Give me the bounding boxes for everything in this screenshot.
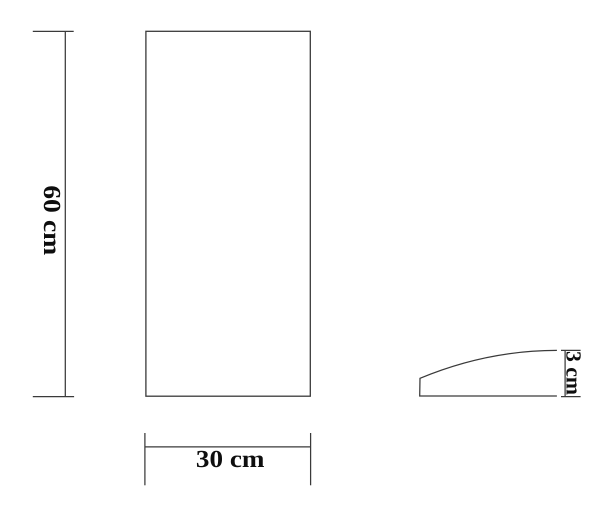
svg-text:60 cm: 60 cm	[38, 185, 65, 255]
svg-text:3 cm: 3 cm	[562, 351, 586, 395]
svg-text:30 cm: 30 cm	[196, 446, 265, 473]
